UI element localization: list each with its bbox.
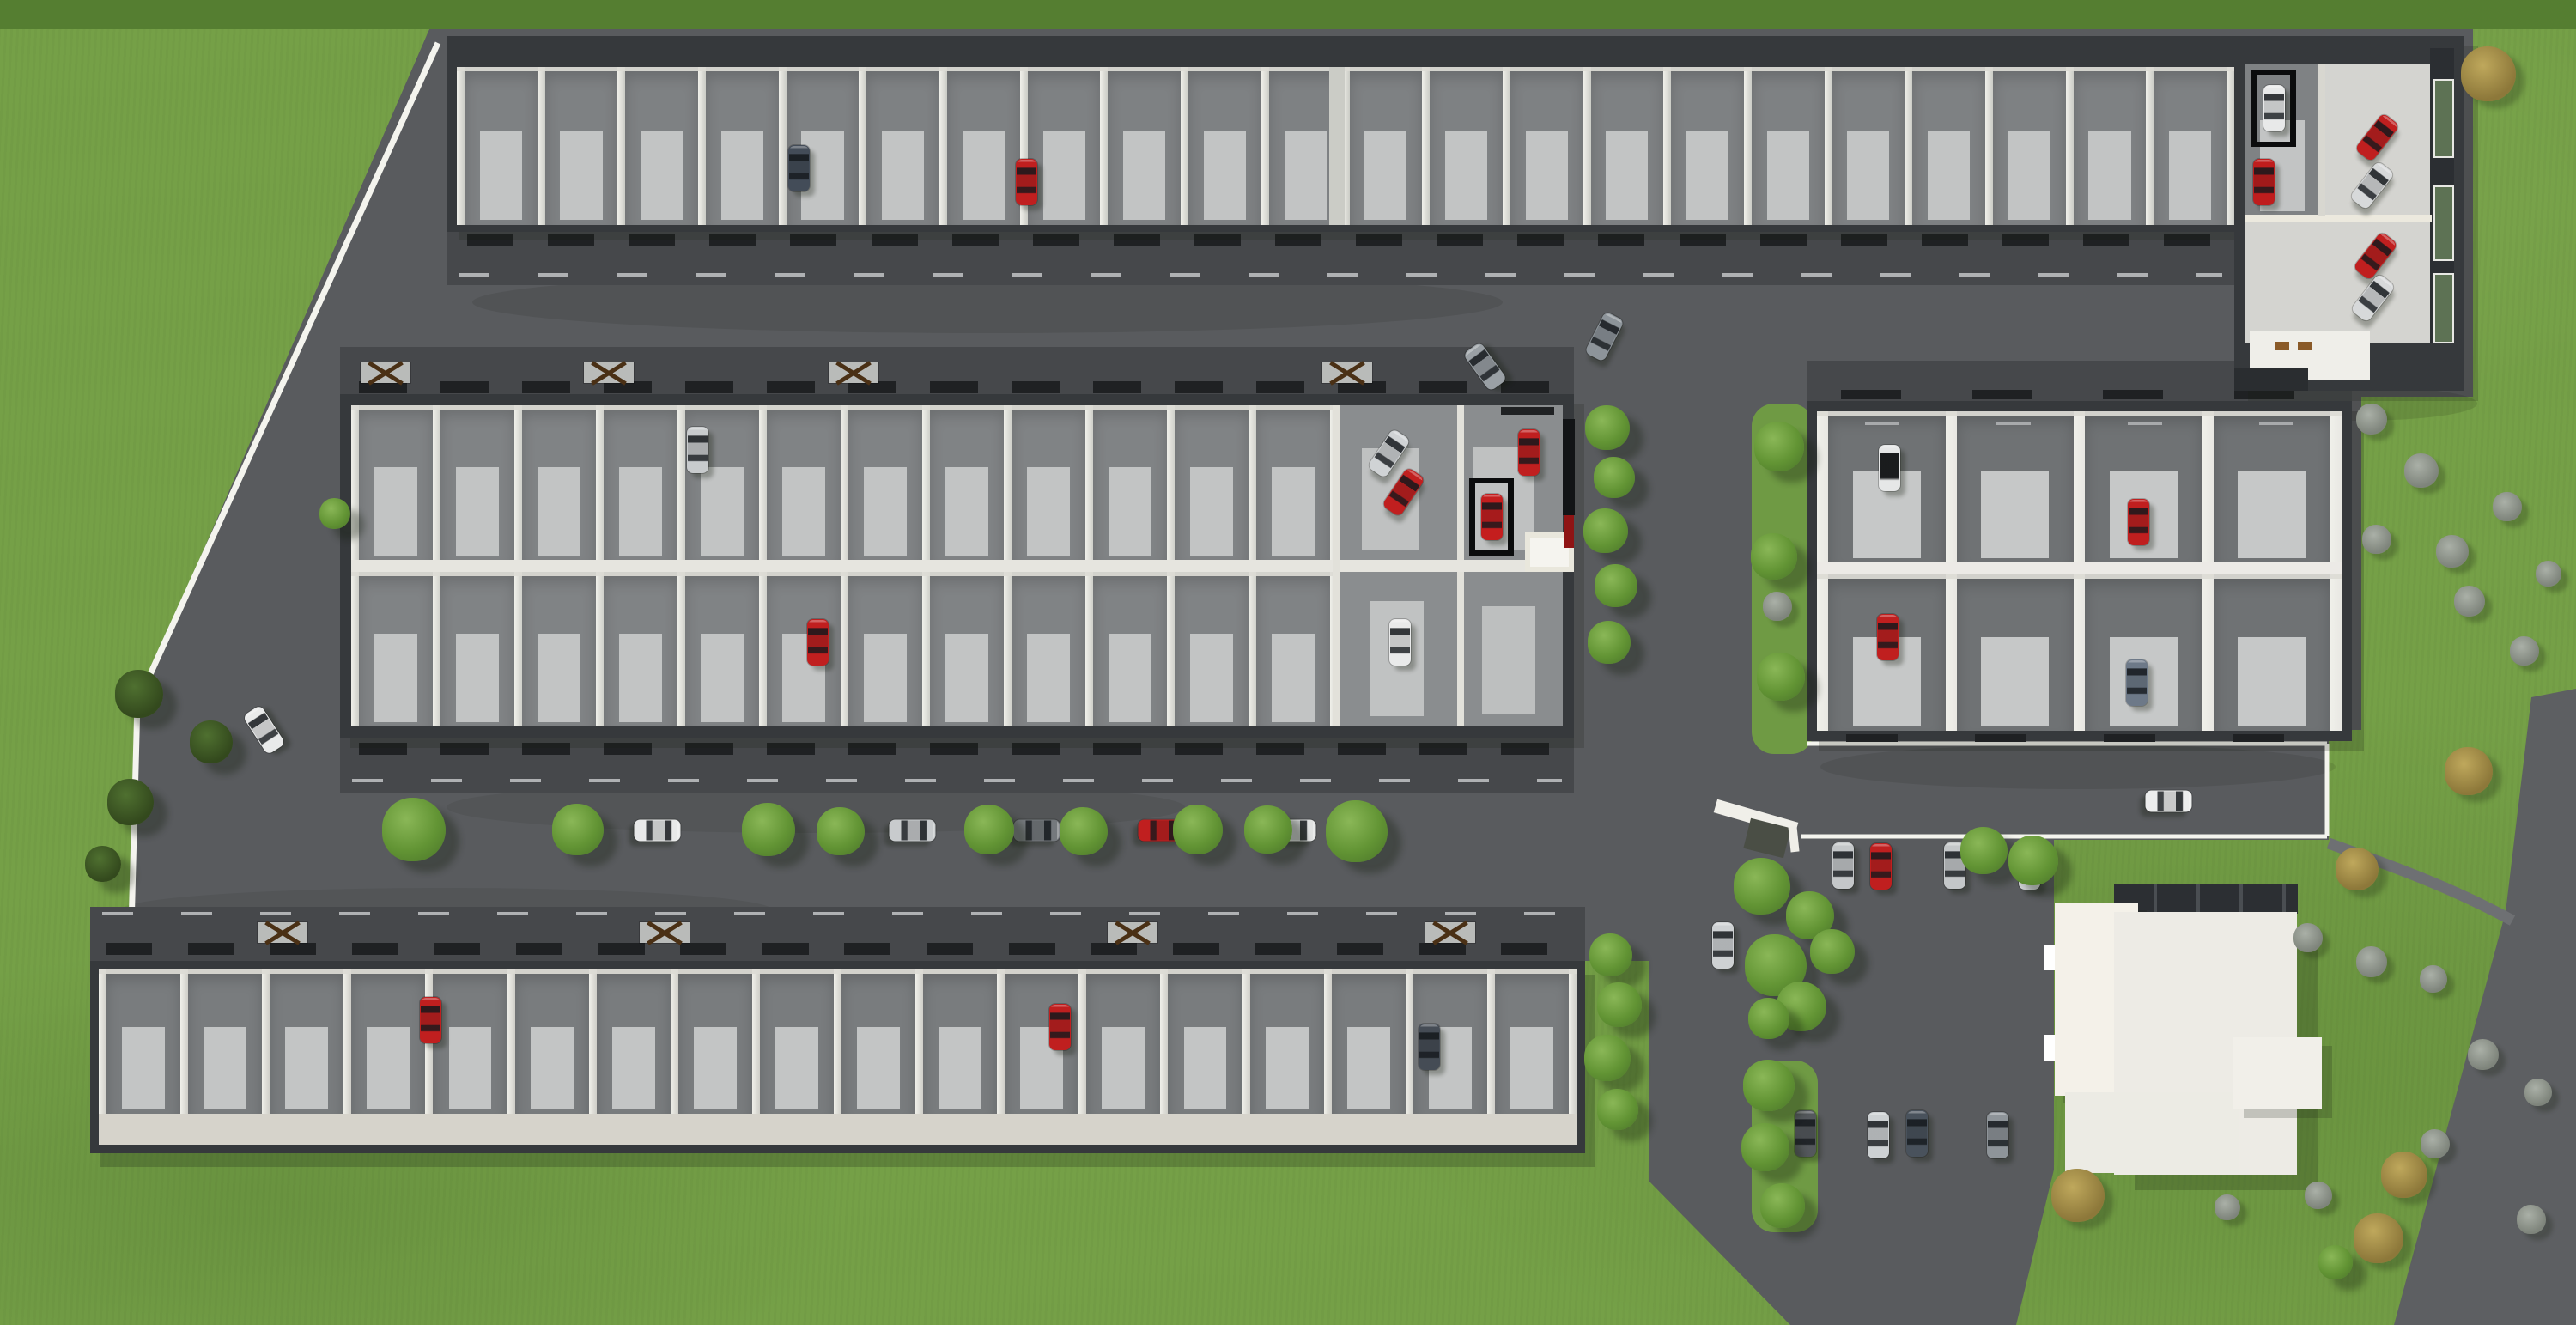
- storage-unit: [2085, 574, 2202, 731]
- car: [1987, 1112, 2008, 1158]
- partition-wall: [671, 969, 678, 1114]
- door-slot: [709, 234, 756, 246]
- shadow: [1820, 745, 2336, 789]
- floor-strip: [2008, 131, 2050, 221]
- partition-wall: [915, 969, 923, 1114]
- partition-wall: [1817, 574, 1828, 731]
- storage-unit: [440, 405, 514, 560]
- car: [1870, 843, 1892, 890]
- partition-wall: [1261, 67, 1269, 225]
- storage-unit: [1175, 405, 1249, 560]
- floor-strip: [1272, 634, 1315, 722]
- floor-strip: [1364, 131, 1406, 221]
- car: [2145, 791, 2191, 812]
- car: [788, 145, 810, 191]
- floor-strip: [1981, 637, 2049, 726]
- partition-wall: [2330, 574, 2342, 731]
- door-slot: [1922, 234, 1968, 246]
- partition-wall: [538, 67, 545, 225]
- showroom-window: [2433, 185, 2454, 261]
- workshop-strip: [1482, 606, 1535, 714]
- door-slot-south: [1975, 734, 2026, 742]
- storage-unit: [351, 969, 425, 1114]
- tree: [190, 720, 233, 763]
- storage-unit: [1188, 67, 1261, 225]
- shrub: [2356, 404, 2387, 435]
- door-slot: [872, 234, 918, 246]
- storage-unit: [270, 969, 343, 1114]
- storage-unit: [604, 572, 677, 726]
- storage-unit: [2214, 574, 2331, 731]
- storage-unit: [1912, 67, 1985, 225]
- floor-strip: [701, 634, 744, 722]
- partition-wall: [596, 405, 604, 560]
- partition-wall: [507, 969, 515, 1114]
- door-slot: [1173, 943, 1219, 955]
- door-slot: [762, 943, 809, 955]
- partition-wall: [2074, 411, 2085, 562]
- car: [1877, 614, 1899, 660]
- gate-post: [640, 922, 690, 943]
- parking-dashes: [102, 912, 1573, 915]
- tree: [2318, 1245, 2353, 1279]
- storage-unit: [841, 969, 915, 1114]
- door-slot: [1194, 234, 1241, 246]
- car-lift: [2251, 75, 2257, 142]
- partition-wall: [99, 969, 106, 1114]
- door-slot: [1256, 743, 1304, 755]
- partition-wall: [1817, 411, 1828, 562]
- door-slot: [1972, 390, 2032, 399]
- door-slot: [1841, 234, 1887, 246]
- storage-unit: [359, 572, 433, 726]
- door-slot: [1009, 943, 1055, 955]
- partition-wall: [922, 572, 930, 726]
- door-slot: [270, 943, 316, 955]
- partition-wall: [351, 572, 359, 726]
- storage-unit: [522, 405, 596, 560]
- car: [1016, 159, 1037, 205]
- tree: [1060, 807, 1108, 855]
- door-mat: [2275, 342, 2289, 350]
- floor-strip: [2238, 637, 2306, 726]
- tree: [1597, 1089, 1638, 1130]
- tree: [2381, 1152, 2427, 1198]
- workshop-wall: [1457, 405, 1464, 560]
- car: [2128, 499, 2149, 545]
- car-lift: [1508, 483, 1514, 550]
- wall-cap: [99, 969, 1577, 974]
- shrub: [2517, 1205, 2546, 1234]
- partition-wall: [262, 969, 270, 1114]
- wall-cap: [351, 405, 1338, 410]
- door-slot: [604, 743, 652, 755]
- floor-strip: [1102, 1027, 1145, 1109]
- partition-wall: [759, 572, 767, 726]
- apron-mid-building-south: [340, 738, 1574, 793]
- floor-strip: [1266, 1027, 1309, 1109]
- gate-post: [258, 922, 307, 943]
- storage-unit: [1175, 572, 1249, 726]
- storage-unit: [866, 67, 939, 225]
- floor-marking: [2128, 422, 2162, 425]
- door-slot: [2083, 234, 2129, 246]
- partition-wall: [1905, 67, 1912, 225]
- right-building-spine: [1817, 562, 2342, 574]
- floor-strip: [963, 131, 1005, 221]
- car: [2126, 659, 2148, 706]
- floor-strip: [1190, 467, 1233, 556]
- storage-facility-site-plan: [0, 0, 2576, 1325]
- door-slot: [359, 743, 407, 755]
- storage-unit: [106, 969, 180, 1114]
- shrub: [2436, 535, 2469, 568]
- partition-wall: [433, 405, 440, 560]
- partition-wall: [433, 572, 440, 726]
- door-slot: [1437, 234, 1483, 246]
- partition-wall: [1242, 969, 1250, 1114]
- shrub: [2524, 1079, 2552, 1106]
- floor-strip: [1190, 634, 1233, 722]
- tree: [115, 670, 163, 718]
- floor-strip: [1347, 1027, 1390, 1109]
- shrub: [2356, 946, 2387, 977]
- storage-unit: [1028, 67, 1101, 225]
- door-slot: [598, 943, 645, 955]
- floor-strip: [374, 634, 417, 722]
- floor-strip: [864, 467, 907, 556]
- storage-unit: [522, 572, 596, 726]
- storage-unit: [1350, 67, 1423, 225]
- tree: [1960, 827, 2008, 874]
- partition-wall: [1422, 67, 1430, 225]
- floor-strip: [1109, 634, 1151, 722]
- car: [1795, 1110, 1816, 1157]
- storage-unit: [1832, 67, 1905, 225]
- door-slot: [2103, 390, 2163, 399]
- floor-strip: [694, 1027, 737, 1109]
- storage-unit: [1093, 572, 1167, 726]
- partition-wall: [1100, 67, 1108, 225]
- partition-wall: [514, 572, 522, 726]
- floor-strip: [1285, 131, 1327, 221]
- door-slot-south: [1846, 734, 1898, 742]
- partition-wall: [841, 572, 848, 726]
- partition-wall: [351, 405, 359, 560]
- door-slot: [1012, 381, 1060, 393]
- floor-strip: [1027, 467, 1070, 556]
- partition-wall: [677, 572, 685, 726]
- storage-unit: [1086, 969, 1160, 1114]
- storage-unit: [597, 969, 671, 1114]
- floor-marking: [1865, 422, 1899, 425]
- door-slot: [1680, 234, 1726, 246]
- gate-post: [1322, 362, 1372, 383]
- door-slot: [1419, 743, 1467, 755]
- floor-strip: [1109, 467, 1151, 556]
- door-slot: [522, 743, 570, 755]
- shrub: [2468, 1039, 2499, 1070]
- partition-wall: [1181, 67, 1188, 225]
- floor-strip: [560, 131, 602, 221]
- tree: [1751, 533, 1797, 580]
- partition-wall: [834, 969, 841, 1114]
- door-slot: [604, 381, 652, 393]
- storage-unit: [947, 67, 1020, 225]
- floor-strip: [1027, 634, 1070, 722]
- door-slot: [952, 234, 999, 246]
- partition-wall: [1985, 67, 1993, 225]
- storage-unit: [359, 405, 433, 560]
- shrub: [2305, 1182, 2332, 1209]
- storage-unit: [515, 969, 589, 1114]
- storage-unit: [2154, 67, 2227, 225]
- parking-dashes: [352, 779, 1562, 782]
- partition-wall: [939, 67, 947, 225]
- storage-unit: [2074, 67, 2147, 225]
- floor-strip: [1928, 131, 1970, 221]
- partition-wall: [2202, 574, 2214, 731]
- storage-unit: [1430, 67, 1503, 225]
- door-slot: [106, 943, 152, 955]
- door-slot-south: [2233, 734, 2284, 742]
- storage-unit: [767, 405, 841, 560]
- car: [1049, 1004, 1071, 1050]
- storage-unit: [1168, 969, 1242, 1114]
- storage-unit: [1510, 67, 1583, 225]
- partition-wall: [2066, 67, 2074, 225]
- partition-wall: [1249, 405, 1256, 560]
- partition-wall: [1167, 572, 1175, 726]
- storage-unit: [604, 405, 677, 560]
- door-slot: [1419, 381, 1467, 393]
- tree: [382, 798, 446, 861]
- partition-wall: [1324, 969, 1332, 1114]
- apron-bottom-building-north: [90, 907, 1585, 961]
- car: [2253, 159, 2275, 205]
- storage-unit: [545, 67, 618, 225]
- floor-strip: [1526, 131, 1568, 221]
- shrub: [2215, 1194, 2240, 1220]
- tree: [1757, 653, 1805, 701]
- tree: [2461, 46, 2516, 101]
- door-slot: [1501, 743, 1549, 755]
- mid-building-spine: [351, 560, 1563, 572]
- workshop-office-room-floor: [1530, 538, 1569, 567]
- car: [1389, 619, 1411, 666]
- gate-post: [829, 362, 878, 383]
- door-slot: [930, 743, 978, 755]
- partition-wall: [2330, 411, 2342, 562]
- partition-wall: [779, 67, 787, 225]
- partition-wall: [1078, 969, 1086, 1114]
- storage-row-mid-north: [351, 405, 1338, 560]
- showroom-wall-vertical: [2318, 64, 2325, 216]
- door-slot: [522, 381, 570, 393]
- partition-wall: [698, 67, 706, 225]
- tree: [1589, 933, 1632, 976]
- shrub: [2493, 492, 2522, 521]
- tree: [1595, 564, 1637, 607]
- firewall-double-partition: [1329, 67, 1345, 225]
- apron-mid-building-north: [340, 347, 1574, 397]
- storage-unit: [1256, 405, 1330, 560]
- storage-unit: [767, 572, 841, 726]
- partition-wall: [2227, 67, 2234, 225]
- car-lift: [1469, 483, 1475, 550]
- tree: [1588, 621, 1631, 664]
- office-annex: [2233, 1037, 2322, 1109]
- tree: [2008, 836, 2058, 885]
- car-lift: [2251, 70, 2296, 75]
- floor-strip: [531, 1027, 574, 1109]
- floor-strip: [2238, 471, 2306, 557]
- wall-cap: [457, 67, 2234, 71]
- door-slot: [1419, 943, 1466, 955]
- floor-strip: [204, 1027, 246, 1109]
- partition-wall: [841, 405, 848, 560]
- door-slot: [1114, 234, 1160, 246]
- floor-strip: [701, 467, 744, 556]
- partition-wall: [922, 405, 930, 560]
- floor-strip: [374, 467, 417, 556]
- car: [1906, 1110, 1928, 1157]
- storage-unit: [625, 67, 698, 225]
- showroom-window: [2433, 273, 2454, 343]
- door-slot: [1255, 943, 1301, 955]
- car: [1419, 1024, 1440, 1070]
- floor-strip: [449, 1027, 492, 1109]
- floor-strip: [721, 131, 763, 221]
- storage-unit: [440, 572, 514, 726]
- floor-strip: [1981, 471, 2049, 557]
- floor-marking: [2259, 422, 2293, 425]
- wall-cap: [351, 572, 1338, 576]
- storage-unit: [1256, 572, 1330, 726]
- shrub: [2510, 636, 2539, 666]
- storage-unit: [465, 67, 538, 225]
- car-lift: [2251, 142, 2296, 147]
- partition-wall: [759, 405, 767, 560]
- storage-row-top: [457, 67, 2234, 225]
- office-lower: [2065, 1092, 2239, 1173]
- partition-wall: [1487, 969, 1495, 1114]
- floor-strip: [775, 1027, 818, 1109]
- shrub: [2362, 525, 2391, 554]
- door-slot: [685, 381, 733, 393]
- partition-wall: [1004, 405, 1012, 560]
- partition-wall: [1583, 67, 1591, 225]
- tree: [1741, 1123, 1789, 1171]
- storage-unit: [1250, 969, 1324, 1114]
- storage-unit: [848, 572, 922, 726]
- storage-unit: [1671, 67, 1744, 225]
- tree: [1597, 982, 1642, 1027]
- floor-strip: [864, 634, 907, 722]
- workshop-wall: [1333, 405, 1340, 726]
- floor-strip: [1847, 131, 1889, 221]
- car: [1518, 429, 1540, 476]
- bottom-building-back-wall: [99, 1114, 1577, 1145]
- tree: [1244, 805, 1292, 854]
- tree: [2336, 848, 2379, 890]
- partition-wall: [1004, 572, 1012, 726]
- workshop-toolbox: [1564, 515, 1574, 548]
- tree: [2445, 747, 2493, 795]
- door-slot: [1517, 234, 1564, 246]
- partition-wall: [457, 67, 465, 225]
- office-step: [2044, 945, 2055, 970]
- floor-strip: [456, 467, 499, 556]
- door-slot: [1841, 390, 1901, 399]
- door-slot: [1598, 234, 1644, 246]
- partition-wall: [752, 969, 760, 1114]
- floor-strip: [2169, 131, 2211, 221]
- tree: [1734, 858, 1790, 915]
- wall-cap: [1817, 574, 2342, 579]
- gate-post: [361, 362, 410, 383]
- storage-unit: [1332, 969, 1406, 1114]
- door-slot: [188, 943, 234, 955]
- floor-strip: [945, 634, 988, 722]
- storage-unit: [678, 969, 752, 1114]
- parking-dashes: [459, 273, 2222, 277]
- shrub: [2404, 453, 2439, 488]
- storage-unit: [1012, 405, 1085, 560]
- car: [1868, 1112, 1889, 1158]
- storage-unit: [1495, 969, 1569, 1114]
- floor-strip: [939, 1027, 981, 1109]
- wall-cap: [1817, 411, 2342, 416]
- door-slot: [1501, 943, 1547, 955]
- door-slot: [516, 943, 562, 955]
- partition-wall: [180, 969, 188, 1114]
- partition-wall: [1406, 969, 1413, 1114]
- floor-strip: [1184, 1027, 1227, 1109]
- storage-unit: [1993, 67, 2066, 225]
- car: [1832, 842, 1854, 889]
- door-slot: [1275, 234, 1321, 246]
- door-slot: [848, 381, 896, 393]
- partition-wall: [1085, 572, 1093, 726]
- floor-strip: [1510, 1027, 1553, 1109]
- apron-top-building-south: [447, 228, 2234, 285]
- workshop-wall: [1457, 572, 1464, 726]
- partition-wall: [1503, 67, 1510, 225]
- floor-strip: [612, 1027, 655, 1109]
- door-slot: [440, 743, 489, 755]
- car: [1712, 922, 1734, 969]
- door-slot: [767, 743, 815, 755]
- door-slot: [927, 943, 973, 955]
- partition-wall: [677, 405, 685, 560]
- showroom-entry-recess: [2234, 368, 2308, 391]
- partition-wall: [1825, 67, 1832, 225]
- partition-wall: [2146, 67, 2154, 225]
- car-lift: [2290, 75, 2296, 142]
- door-slot: [685, 743, 733, 755]
- storage-unit: [1752, 67, 1825, 225]
- door-slot-south: [2104, 734, 2155, 742]
- door-mat: [2298, 342, 2312, 350]
- shrub: [2454, 586, 2485, 617]
- door-slot: [2164, 234, 2210, 246]
- storage-unit: [930, 572, 1004, 726]
- door-slot: [2234, 390, 2294, 399]
- partition-wall: [617, 67, 625, 225]
- gate-post: [1425, 922, 1475, 943]
- storage-unit: [1093, 405, 1167, 560]
